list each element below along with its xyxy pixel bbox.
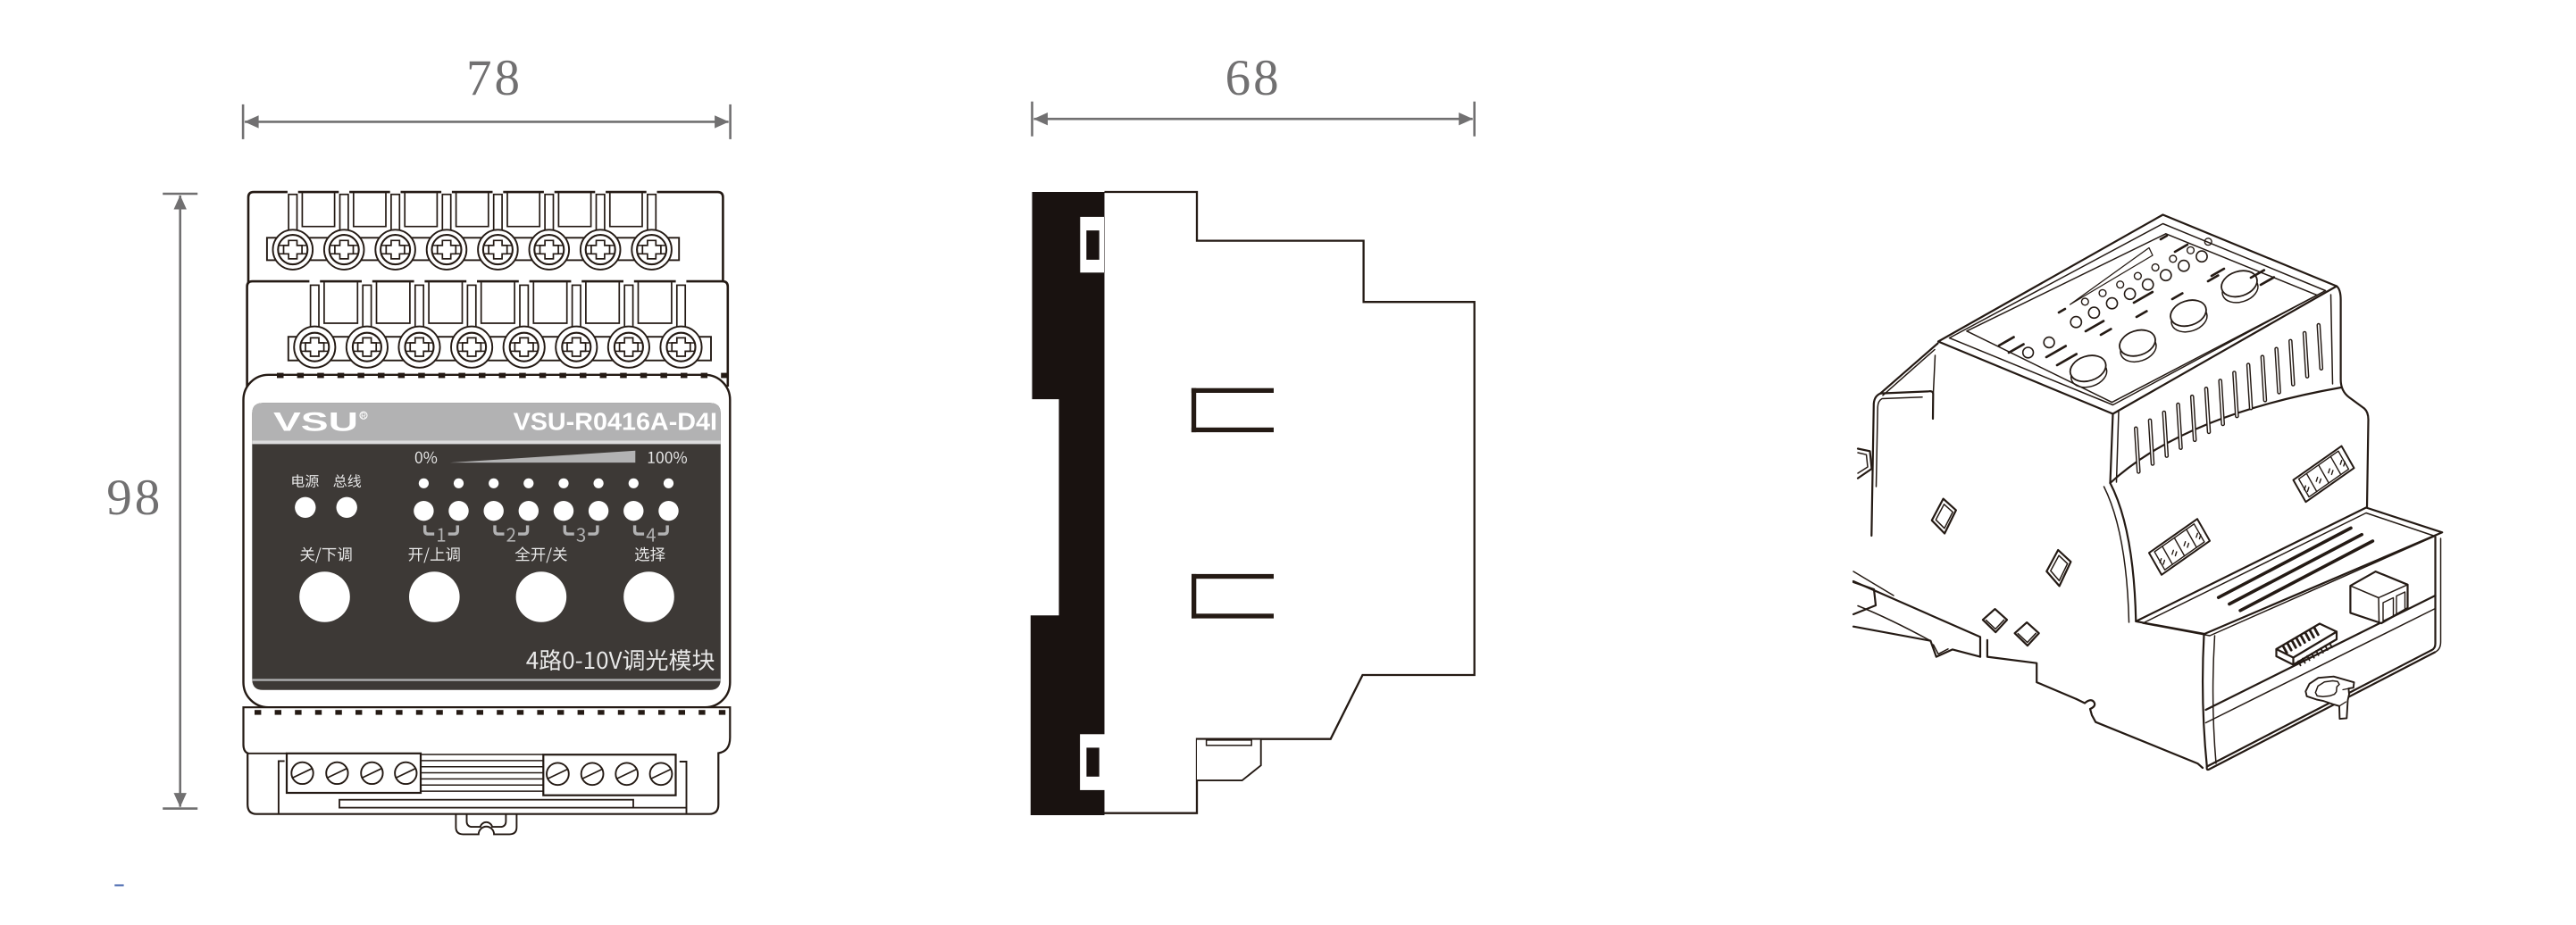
svg-text:VSU-R0416A-D4I: VSU-R0416A-D4I: [514, 408, 717, 436]
svg-text:VSU: VSU: [273, 408, 358, 437]
svg-text:R: R: [361, 412, 366, 420]
svg-text:78: 78: [466, 50, 523, 106]
svg-text:98: 98: [106, 470, 163, 526]
svg-text:68: 68: [1225, 50, 1282, 106]
